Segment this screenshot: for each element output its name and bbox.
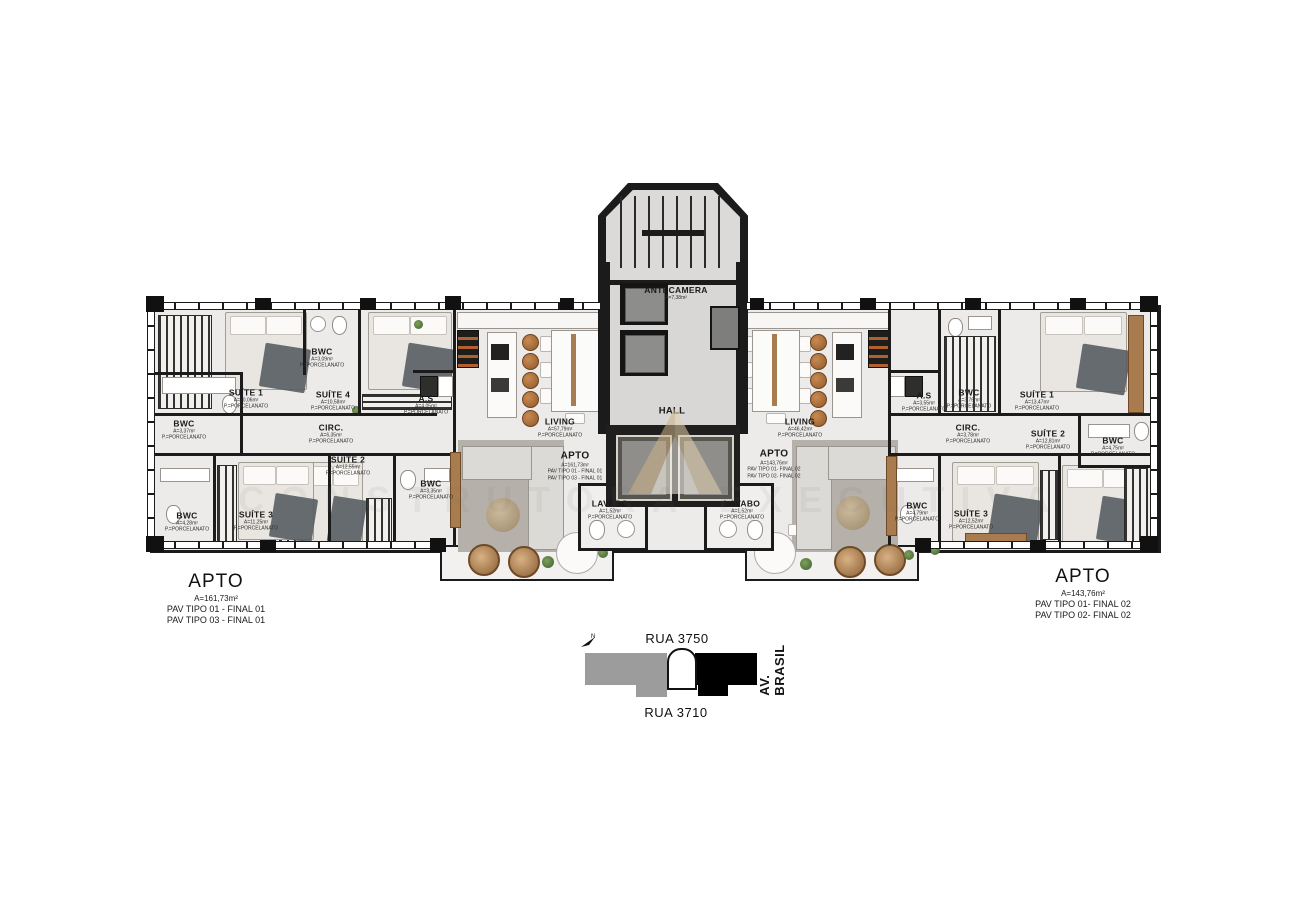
apto-label-inplan-left: APTO A=161,73m² PAV TIPO 01 - FINAL 01 P… <box>548 451 603 482</box>
plant <box>800 558 812 570</box>
room-floor: P.=PORCELANATO <box>947 404 991 410</box>
room-name: LAVABO <box>720 499 764 509</box>
room-floor: P.=PORCELANATO <box>902 407 946 413</box>
room-name: BWC <box>300 347 344 357</box>
room-label-bwc-suite3-right: BWC A=4,79m² P.=PORCELANATO <box>895 501 939 524</box>
window-band <box>1150 310 1158 543</box>
chair <box>799 362 811 378</box>
plant <box>904 550 914 560</box>
stool <box>810 334 827 351</box>
room-name: A.S <box>404 394 448 404</box>
street-bottom-label: RUA 3710 <box>644 705 707 720</box>
toilet <box>948 318 963 337</box>
room-floor: P.=PORCELANATO <box>720 515 764 521</box>
room-label-suite1-left: SUÍTE 1 A=20,06m² P.=PORCELANATO <box>224 388 268 411</box>
north-letter: N <box>591 634 595 640</box>
room-name: LIVING <box>538 417 582 427</box>
room-floor: P.=PORCELANATO <box>895 517 939 523</box>
wall <box>413 370 455 373</box>
wall <box>891 370 940 373</box>
room-name: BWC <box>1091 436 1135 446</box>
apto-line2: PAV TIPO 02- FINAL 02 <box>1035 610 1131 620</box>
apto-summary-left: APTO A=161,73m² PAV TIPO 01 - FINAL 01 P… <box>167 571 265 625</box>
room-name: SUÍTE 3 <box>234 510 278 520</box>
wall <box>888 413 1152 416</box>
toilet <box>332 316 347 335</box>
plant <box>414 320 423 329</box>
cooktop <box>491 344 509 360</box>
column <box>750 298 764 310</box>
room-name: BWC <box>409 479 453 489</box>
wall <box>393 455 396 545</box>
column <box>260 540 276 552</box>
wardrobe <box>158 315 212 409</box>
map-block-black-notch <box>698 685 728 696</box>
site-map: N RUA 3750 RUA 3710 AV. BRASIL <box>560 625 810 735</box>
room-floor: P.=PORCELANATO <box>778 433 822 439</box>
apto-line1: PAV TIPO 01 - FINAL 01 <box>167 604 265 614</box>
avenue-label: AV. BRASIL <box>757 644 787 695</box>
room-floor: P.=PORCELANATO <box>234 526 278 532</box>
room-floor: P.=PORCELANATO <box>1026 445 1070 451</box>
toilet <box>589 520 605 540</box>
room-label-as-left: A.S A=4,05m² P.=PORCELANATO <box>404 394 448 417</box>
room-floor: P.=PORCELANATO <box>404 410 448 416</box>
room-floor: P.=PORCELANATO <box>309 439 353 445</box>
apto-title: APTO <box>1035 566 1131 588</box>
apto-line1: PAV TIPO 01 - FINAL 01 <box>548 469 603 475</box>
sofa-chaise <box>462 446 532 480</box>
column <box>255 298 271 310</box>
stair-landing-wall <box>642 230 704 236</box>
room-floor: P.=PORCELANATO <box>949 525 993 531</box>
stool <box>810 391 827 408</box>
room-name: BWC <box>895 501 939 511</box>
sink <box>310 316 326 332</box>
apto-line2: PAV TIPO 02- FINAL 02 <box>747 473 800 479</box>
room-floor: P.=PORCELANATO <box>588 515 632 521</box>
apto-line1: PAV TIPO 01- FINAL 02 <box>747 467 800 473</box>
room-label-lavabo-left: LAVABO A=1,52m² P.=PORCELANATO <box>588 499 632 522</box>
chair <box>799 388 811 404</box>
column <box>430 538 446 552</box>
vanity <box>160 468 210 482</box>
wicker-chair <box>508 546 540 578</box>
table-runner <box>772 334 777 406</box>
room-name: SUÍTE 1 <box>224 388 268 398</box>
apto-line1: PAV TIPO 01- FINAL 02 <box>1035 599 1131 609</box>
antecamera-label: ANTECAMERA A=7,38m² <box>644 285 707 301</box>
kitchen-counter <box>457 312 609 329</box>
wicker-chair <box>834 546 866 578</box>
north-arrow-icon: N <box>578 631 600 653</box>
column <box>146 296 164 312</box>
column <box>965 298 981 310</box>
room-label-suite3-left: SUÍTE 3 A=11,25m² P.=PORCELANATO <box>234 510 278 533</box>
column <box>445 296 461 310</box>
elevator-shaft-2 <box>620 330 668 376</box>
elevator-cab-2 <box>625 335 665 373</box>
apto-summary-right: APTO A=143,76m² PAV TIPO 01- FINAL 02 PA… <box>1035 566 1131 620</box>
room-floor: P.=PORCELANATO <box>224 404 268 410</box>
room-label-circ-left: CIRC. A=6,35m² P.=PORCELANATO <box>309 423 353 446</box>
service-shaft <box>710 306 740 350</box>
window-band <box>147 310 155 543</box>
map-block-black <box>695 653 757 685</box>
oven-tower <box>457 330 479 368</box>
floor-plan-sheet: SUÍTE 1 A=20,06m² P.=PORCELANATO BWC A=3… <box>0 0 1300 919</box>
stool <box>522 372 539 389</box>
room-floor: P.=PORCELANATO <box>165 527 209 533</box>
room-label-suite3-right: SUÍTE 3 A=12,52m² P.=PORCELANATO <box>949 509 993 532</box>
room-label-bwc-suite4-left: BWC A=3,09m² P.=PORCELANATO <box>300 347 344 370</box>
island-sink <box>836 378 854 392</box>
toilet <box>1134 422 1149 441</box>
apto-title: APTO <box>167 571 265 593</box>
room-floor: P.=PORCELANATO <box>326 471 370 477</box>
room-area: A=7,38m² <box>644 295 707 301</box>
apto-title: APTO <box>548 451 603 463</box>
table-runner <box>571 334 576 406</box>
room-label-suite2-right: SUÍTE 2 A=12,81m² P.=PORCELANATO <box>1026 429 1070 452</box>
oven-tower <box>868 330 890 368</box>
apto-line2: PAV TIPO 03 - FINAL 01 <box>167 615 265 625</box>
stool <box>522 410 539 427</box>
cooktop <box>836 344 854 360</box>
map-building-outline <box>667 648 697 690</box>
room-name: SUÍTE 2 <box>326 455 370 465</box>
wall <box>1058 455 1061 545</box>
room-name: SUÍTE 2 <box>1026 429 1070 439</box>
room-name: CIRC. <box>946 423 990 433</box>
room-label-suite2-left: SUÍTE 2 A=12,55m² P.=PORCELANATO <box>326 455 370 478</box>
room-label-living-right: LIVING A=46,42m² P.=PORCELANATO <box>778 417 822 440</box>
room-floor: P.=PORCELANATO <box>409 495 453 501</box>
plant <box>542 556 554 568</box>
bed-suite1 <box>225 312 307 390</box>
wardrobe <box>1124 468 1148 542</box>
room-label-as-right: A.S A=3,55m² P.=PORCELANATO <box>902 391 946 414</box>
room-name: CIRC. <box>309 423 353 433</box>
armchair <box>486 498 520 532</box>
wall <box>240 372 243 456</box>
room-floor: P.=PORCELANATO <box>538 433 582 439</box>
wall <box>358 307 361 413</box>
wicker-chair <box>874 544 906 576</box>
island-sink <box>491 378 509 392</box>
room-name: BWC <box>162 419 206 429</box>
column <box>360 298 376 310</box>
room-name: SUÍTE 1 <box>1015 390 1059 400</box>
wicker-chair <box>468 544 500 576</box>
sink <box>617 520 635 538</box>
entry-vestibule <box>606 425 740 507</box>
wall <box>155 413 437 416</box>
core-wall-left <box>598 262 610 434</box>
apto-area: A=143,76m² <box>1035 589 1131 598</box>
wall <box>1078 413 1081 467</box>
sink <box>719 520 737 538</box>
window-band <box>150 541 440 549</box>
room-label-living-left: LIVING A=57,79m² P.=PORCELANATO <box>538 417 582 440</box>
room-name: BWC <box>947 388 991 398</box>
room-label-bwc-left: BWC A=3,37m² P.=PORCELANATO <box>162 419 206 442</box>
room-label-bwc-suite2-right: BWC A=4,75m² P.=PORCELANATO <box>1091 436 1135 459</box>
stool <box>522 334 539 351</box>
room-label-suite1-right: SUÍTE 1 A=13,47m² P.=PORCELANATO <box>1015 390 1059 413</box>
street-top-label: RUA 3750 <box>645 631 708 646</box>
stool <box>810 353 827 370</box>
sofa <box>796 446 832 550</box>
room-floor: P.=PORCELANATO <box>162 435 206 441</box>
column <box>1140 536 1158 552</box>
wall <box>998 307 1001 415</box>
room-label-circ-right: CIRC. A=3,78m² P.=PORCELANATO <box>946 423 990 446</box>
toilet <box>747 520 763 540</box>
map-block-gray-notch <box>636 685 667 697</box>
stool <box>522 391 539 408</box>
room-name: A.S <box>902 391 946 401</box>
wardrobe <box>366 498 392 544</box>
apto-label-inplan-right: APTO A=143,76m² PAV TIPO 01- FINAL 02 PA… <box>747 449 800 480</box>
room-name: HALL <box>659 405 686 416</box>
wood-door <box>886 456 897 536</box>
entry-mat-left <box>616 435 672 501</box>
armchair <box>836 496 870 530</box>
kitchen-counter <box>740 312 890 329</box>
map-block-gray <box>585 653 667 685</box>
room-label-lavabo-right: LAVABO A=1,52m² P.=PORCELANATO <box>720 499 764 522</box>
bed-suite1-right <box>1040 312 1127 392</box>
room-name: SUÍTE 3 <box>949 509 993 519</box>
stool <box>810 372 827 389</box>
room-name: BWC <box>165 511 209 521</box>
wall <box>155 372 243 375</box>
room-floor: P.=PORCELANATO <box>311 406 355 412</box>
wall <box>1078 465 1152 468</box>
wall <box>213 455 216 545</box>
room-floor: P.=PORCELANATO <box>946 439 990 445</box>
room-floor: P.=PORCELANATO <box>1015 406 1059 412</box>
room-label-bwc-suite2-left: BWC A=3,35m² P.=PORCELANATO <box>409 479 453 502</box>
room-label-bwc-social-right: BWC A=3,76m² P.=PORCELANATO <box>947 388 991 411</box>
room-floor: P.=PORCELANATO <box>300 363 344 369</box>
entry-mat-right <box>678 435 734 501</box>
wardrobe <box>1040 470 1058 540</box>
apto-title: APTO <box>747 449 800 461</box>
vanity <box>968 316 992 330</box>
column <box>146 536 164 552</box>
apto-area: A=161,73m² <box>167 594 265 603</box>
stool <box>522 353 539 370</box>
column <box>860 298 876 310</box>
room-name: LIVING <box>778 417 822 427</box>
room-name: ANTECAMERA <box>644 285 707 295</box>
column <box>1030 540 1046 552</box>
column <box>915 538 931 552</box>
room-floor: P.=PORCELANATO <box>1091 452 1135 458</box>
column <box>560 298 574 310</box>
column <box>1070 298 1086 310</box>
wall <box>155 453 455 456</box>
room-name: LAVABO <box>588 499 632 509</box>
vanity <box>896 468 934 482</box>
apto-line2: PAV TIPO 03 - FINAL 01 <box>548 475 603 481</box>
room-label-suite4-left: SUÍTE 4 A=10,58m² P.=PORCELANATO <box>311 390 355 413</box>
room-name: SUÍTE 4 <box>311 390 355 400</box>
column <box>1140 296 1158 312</box>
window-band <box>745 302 1155 310</box>
room-label-bwc-suite3-left: BWC A=4,28m² P.=PORCELANATO <box>165 511 209 534</box>
hall-label: HALL <box>659 405 686 416</box>
wood-headboard <box>1128 315 1144 413</box>
